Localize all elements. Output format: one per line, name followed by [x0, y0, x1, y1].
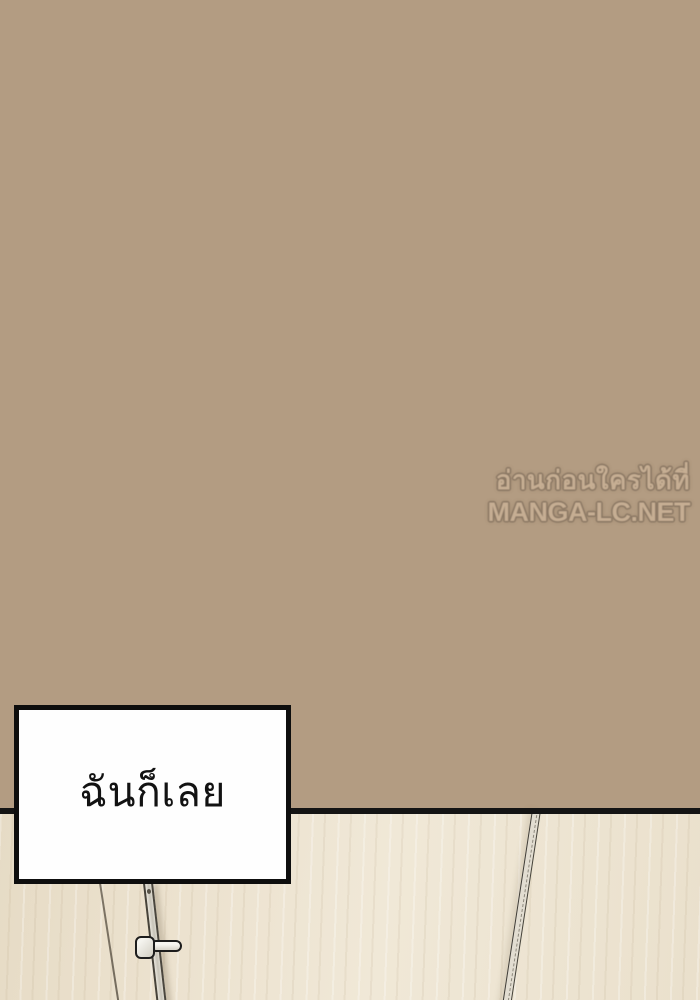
- wall-panel: อ่านก่อนใครได้ที่ MANGA-LC.NET: [0, 0, 700, 811]
- speech-box: ฉันก็เลย: [14, 705, 291, 884]
- watermark-site-name: MANGA-LC.NET: [488, 498, 690, 528]
- door-handle-plate: [135, 936, 155, 959]
- door-screw: [147, 889, 152, 894]
- watermark-line1: อ่านก่อนใครได้ที่: [488, 464, 690, 497]
- watermark: อ่านก่อนใครได้ที่ MANGA-LC.NET: [488, 464, 690, 527]
- manga-page: อ่านก่อนใครได้ที่ MANGA-LC.NET ฉันก็เลย: [0, 0, 700, 1000]
- speech-text: ฉันก็เลย: [79, 760, 226, 829]
